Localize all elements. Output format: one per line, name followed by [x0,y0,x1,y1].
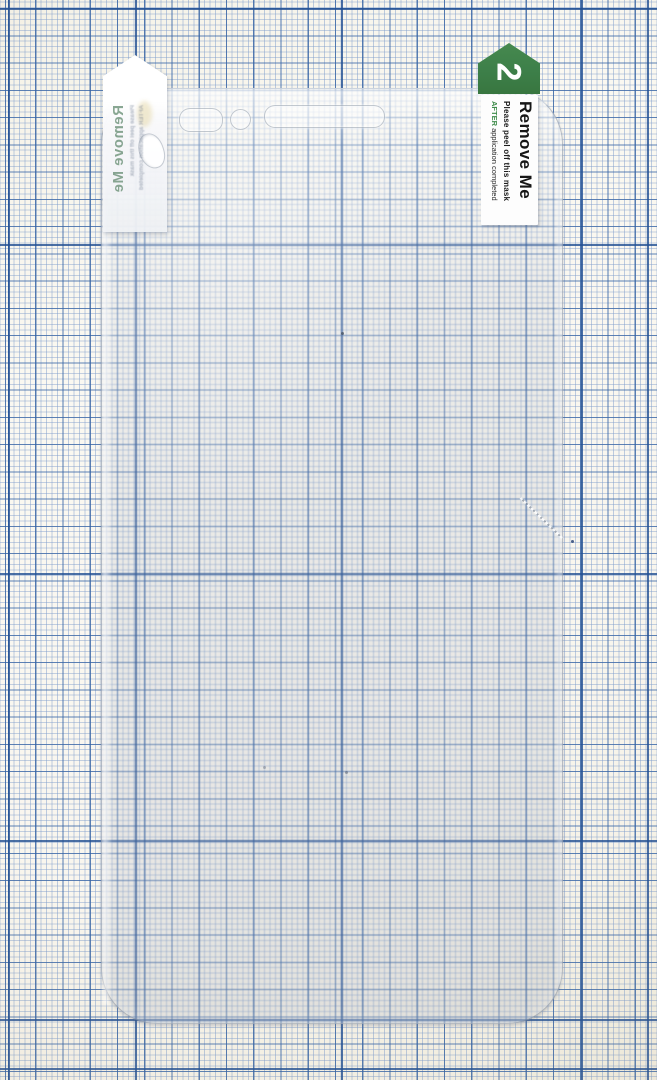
after-instruction: AFTER application completed [489,101,500,225]
after-rest: application completed [490,126,499,201]
mirrored-instruction-line: AFTER application completed [138,105,147,225]
dust-speck [263,766,266,769]
product-photo-scene: Remove Me Please peel off this mask AFTE… [0,0,657,1080]
pull-tab-step1-body: Remove Me Please peel off this mask AFTE… [103,55,167,232]
step-number: 2 [491,62,525,81]
speaker-slot-cutout [264,105,385,128]
dust-speck [341,332,344,335]
pull-tab-step2-text: Remove Me Please peel off this mask AFTE… [481,95,538,225]
grid-major-line [581,0,583,1080]
mirrored-instruction-line: Please peel off this mask [129,105,138,225]
pull-tab-step2-label: Remove Me Please peel off this mask AFTE… [481,95,538,225]
film-reflection-sheen [102,89,562,1023]
peel-instruction: Please peel off this mask [500,101,513,225]
grid-major-line [0,8,657,10]
grid-major-line [647,0,649,1080]
dust-speck [345,771,348,774]
earpiece-sensor-cutout [179,108,223,132]
remove-me-mirrored-text: Remove Me [109,105,129,225]
film-right-edge-highlight [555,179,561,983]
pull-tab-step1: Remove Me Please peel off this mask AFTE… [103,55,167,232]
pull-tab-step1-text: Remove Me Please peel off this mask AFTE… [109,105,155,225]
grid-major-line [8,0,10,1080]
camera-hole-cutout [230,109,251,130]
remove-me-title: Remove Me [515,101,536,225]
after-emphasis: AFTER [490,101,499,126]
screen-protector-film [101,88,563,1024]
ink-speck [571,540,574,543]
film-left-edge-highlight [103,209,112,1005]
grid-major-line [0,1068,657,1070]
